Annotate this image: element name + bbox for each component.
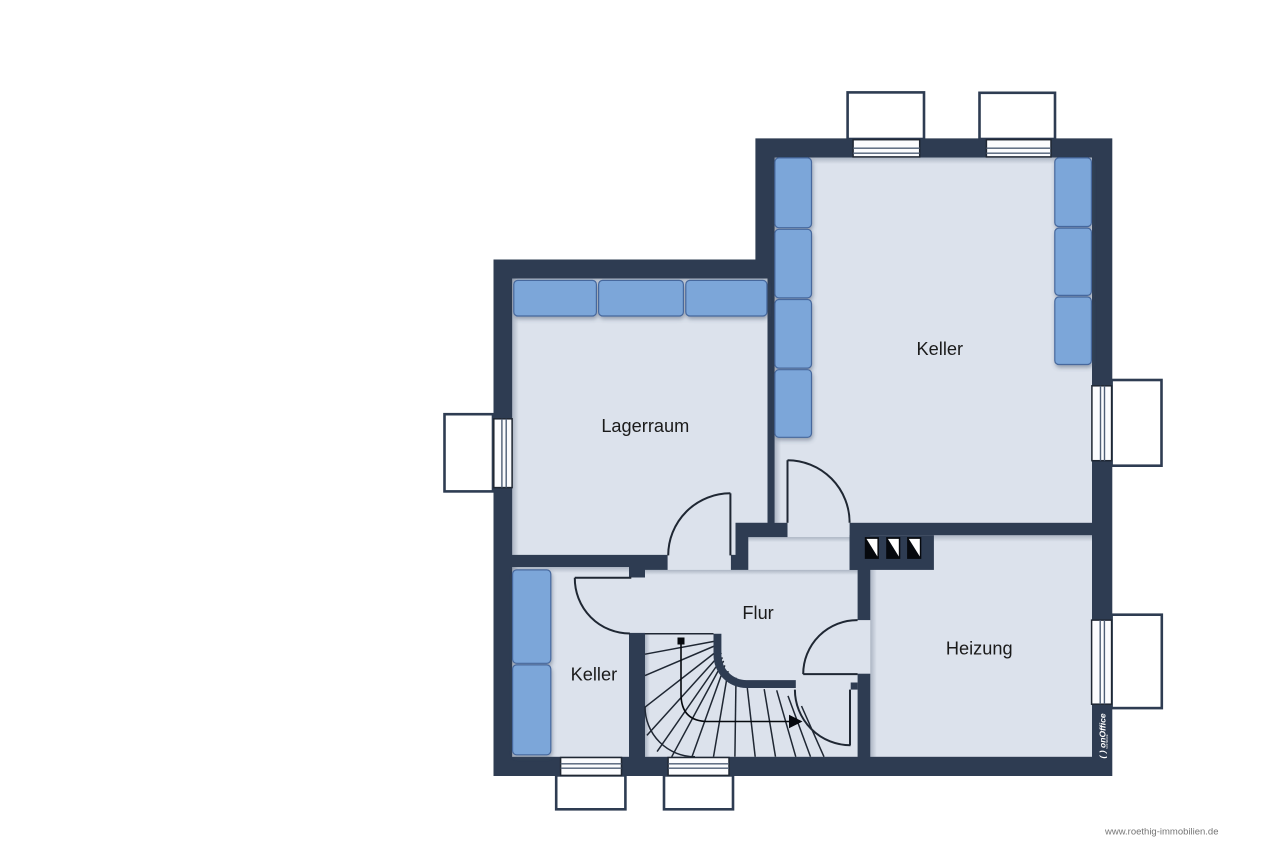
- svg-text:SOFTWARE: SOFTWARE: [1105, 734, 1109, 749]
- svg-text:Heizung: Heizung: [946, 638, 1013, 658]
- svg-text:www.roethig-immobilien.de: www.roethig-immobilien.de: [1104, 826, 1219, 837]
- svg-text:Flur: Flur: [742, 603, 773, 623]
- svg-text:Lagerraum: Lagerraum: [601, 416, 689, 436]
- svg-text:Keller: Keller: [917, 339, 964, 359]
- svg-text:Keller: Keller: [571, 664, 618, 684]
